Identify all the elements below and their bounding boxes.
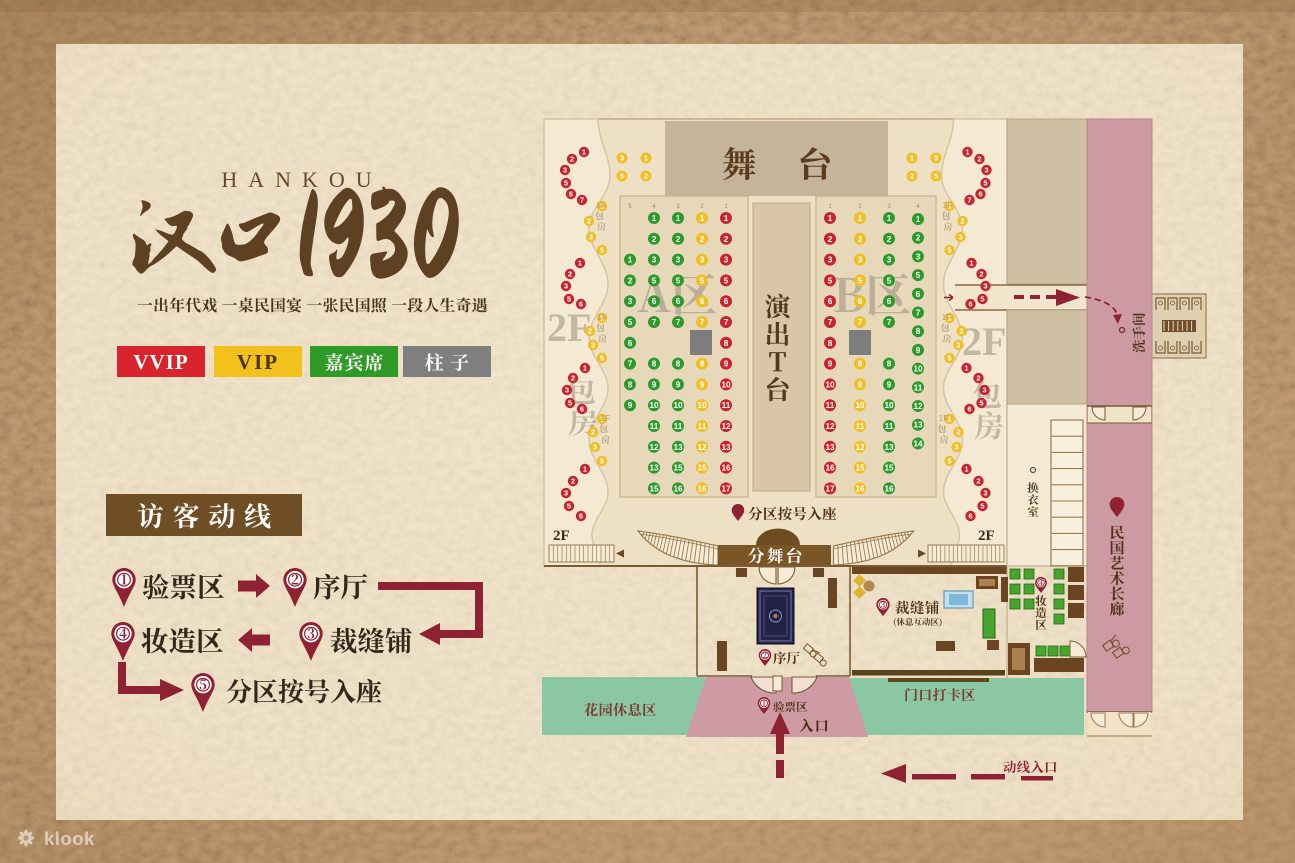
svg-text:5: 5 xyxy=(980,295,984,304)
svg-text:8: 8 xyxy=(676,360,681,369)
svg-text:13: 13 xyxy=(721,443,731,452)
svg-text:9: 9 xyxy=(887,380,892,389)
svg-text:3: 3 xyxy=(564,282,568,291)
svg-text:5: 5 xyxy=(600,354,604,363)
svg-text:2: 2 xyxy=(700,235,705,244)
svg-text:12: 12 xyxy=(855,443,865,452)
svg-text:12: 12 xyxy=(825,422,835,431)
svg-text:9: 9 xyxy=(724,360,729,369)
svg-text:1: 1 xyxy=(910,154,914,163)
svg-text:7: 7 xyxy=(628,360,633,369)
svg-text:VVIP: VVIP xyxy=(133,350,188,374)
svg-text:6: 6 xyxy=(724,297,729,306)
svg-text:15: 15 xyxy=(697,464,707,473)
svg-text:12: 12 xyxy=(721,422,731,431)
svg-text:2: 2 xyxy=(676,235,681,244)
svg-text:8: 8 xyxy=(652,360,657,369)
svg-text:3: 3 xyxy=(984,166,988,175)
svg-text:2: 2 xyxy=(976,374,980,383)
svg-text:2F: 2F xyxy=(553,528,570,544)
svg-text:16: 16 xyxy=(884,484,894,493)
svg-text:1: 1 xyxy=(964,364,968,373)
svg-text:7: 7 xyxy=(652,318,657,327)
svg-text:3: 3 xyxy=(563,166,567,175)
svg-text:6: 6 xyxy=(579,300,583,309)
svg-text:10: 10 xyxy=(697,401,707,410)
svg-text:16: 16 xyxy=(673,484,683,493)
svg-text:2: 2 xyxy=(979,270,983,279)
svg-text:17: 17 xyxy=(825,484,835,493)
svg-text:7: 7 xyxy=(916,309,921,318)
svg-text:10: 10 xyxy=(649,401,659,410)
svg-text:1: 1 xyxy=(652,214,657,223)
svg-text:6: 6 xyxy=(916,290,921,299)
svg-text:3: 3 xyxy=(620,154,624,163)
svg-text:11: 11 xyxy=(885,422,894,431)
svg-text:6: 6 xyxy=(628,339,633,348)
svg-text:10: 10 xyxy=(721,380,731,389)
svg-text:5: 5 xyxy=(568,399,572,408)
svg-text:2F: 2F xyxy=(962,319,1006,364)
svg-text:7: 7 xyxy=(967,196,971,205)
svg-text:3: 3 xyxy=(593,443,597,452)
svg-text:17: 17 xyxy=(721,484,731,493)
svg-text:11: 11 xyxy=(856,422,865,431)
svg-text:16: 16 xyxy=(721,464,731,473)
svg-text:11: 11 xyxy=(826,401,835,410)
svg-text:1: 1 xyxy=(965,148,969,157)
svg-text:3: 3 xyxy=(954,443,958,452)
svg-text:1: 1 xyxy=(583,465,587,474)
svg-text:13: 13 xyxy=(649,464,659,473)
svg-text:3: 3 xyxy=(858,256,863,265)
svg-text:3: 3 xyxy=(724,256,729,265)
svg-text:8: 8 xyxy=(828,339,833,348)
svg-text:8: 8 xyxy=(628,380,633,389)
svg-text:3: 3 xyxy=(628,297,633,306)
svg-text:1: 1 xyxy=(700,214,705,223)
svg-text:2: 2 xyxy=(724,235,729,244)
svg-text:6: 6 xyxy=(828,297,833,306)
svg-text:11: 11 xyxy=(674,422,683,431)
svg-text:11: 11 xyxy=(722,401,731,410)
svg-text:5: 5 xyxy=(947,246,951,255)
svg-text:3: 3 xyxy=(934,154,938,163)
svg-text:7: 7 xyxy=(580,196,584,205)
svg-text:6: 6 xyxy=(676,297,681,306)
svg-text:3: 3 xyxy=(652,256,657,265)
svg-text:2F: 2F xyxy=(547,305,591,350)
svg-text:2: 2 xyxy=(916,234,921,243)
svg-text:9: 9 xyxy=(652,380,657,389)
svg-text:13: 13 xyxy=(884,443,894,452)
svg-text:9: 9 xyxy=(628,401,633,410)
svg-text:5: 5 xyxy=(858,276,863,285)
svg-text:klook: klook xyxy=(44,828,95,849)
svg-text:8: 8 xyxy=(858,360,863,369)
svg-text:2: 2 xyxy=(652,235,657,244)
svg-text:5: 5 xyxy=(980,502,984,511)
svg-text:6: 6 xyxy=(968,512,972,521)
svg-text:7: 7 xyxy=(858,318,863,327)
svg-text:10: 10 xyxy=(913,365,923,374)
svg-text:8: 8 xyxy=(724,339,729,348)
svg-text:1: 1 xyxy=(724,214,729,223)
svg-text:3: 3 xyxy=(676,256,681,265)
svg-text:1: 1 xyxy=(583,364,587,373)
svg-text:6: 6 xyxy=(580,405,584,414)
svg-text:3: 3 xyxy=(983,282,987,291)
svg-text:6: 6 xyxy=(967,405,971,414)
svg-text:3: 3 xyxy=(828,256,833,265)
svg-text:5: 5 xyxy=(700,276,705,285)
svg-text:5: 5 xyxy=(620,172,624,181)
svg-text:3: 3 xyxy=(982,386,986,395)
svg-text:1: 1 xyxy=(916,215,921,224)
svg-text:1: 1 xyxy=(628,256,633,265)
svg-text:3: 3 xyxy=(983,489,987,498)
svg-text:1: 1 xyxy=(858,214,863,223)
svg-text:5: 5 xyxy=(828,276,833,285)
svg-text:7: 7 xyxy=(676,318,681,327)
svg-text:5: 5 xyxy=(567,295,571,304)
svg-text:9: 9 xyxy=(916,346,921,355)
svg-text:2: 2 xyxy=(887,235,892,244)
svg-text:1: 1 xyxy=(578,259,582,268)
svg-text:1: 1 xyxy=(828,214,833,223)
svg-text:3: 3 xyxy=(958,233,962,242)
svg-text:2: 2 xyxy=(570,155,574,164)
svg-text:6: 6 xyxy=(569,190,573,199)
svg-text:2: 2 xyxy=(568,270,572,279)
svg-text:16: 16 xyxy=(697,484,707,493)
svg-text:9: 9 xyxy=(700,380,705,389)
svg-text:2: 2 xyxy=(910,172,914,181)
svg-text:13: 13 xyxy=(825,443,835,452)
svg-text:9: 9 xyxy=(676,380,681,389)
svg-text:2: 2 xyxy=(628,276,633,285)
svg-text:3: 3 xyxy=(564,489,568,498)
svg-text:5: 5 xyxy=(916,271,921,280)
svg-text:12: 12 xyxy=(913,402,923,411)
svg-text:3: 3 xyxy=(916,252,921,261)
svg-text:HANKOU: HANKOU xyxy=(221,167,382,192)
svg-text:1: 1 xyxy=(644,154,648,163)
svg-text:6: 6 xyxy=(887,297,892,306)
svg-text:7: 7 xyxy=(700,318,705,327)
svg-text:10: 10 xyxy=(855,401,865,410)
svg-text:5: 5 xyxy=(887,276,892,285)
svg-text:10: 10 xyxy=(825,380,835,389)
svg-text:2: 2 xyxy=(571,477,575,486)
svg-text:15: 15 xyxy=(673,464,683,473)
svg-text:12: 12 xyxy=(649,443,659,452)
svg-text:3: 3 xyxy=(700,256,705,265)
svg-text:5: 5 xyxy=(652,276,657,285)
svg-text:2: 2 xyxy=(959,327,963,336)
svg-text:3: 3 xyxy=(589,233,593,242)
svg-text:2: 2 xyxy=(977,155,981,164)
svg-text:5: 5 xyxy=(979,399,983,408)
svg-text:15: 15 xyxy=(649,484,659,493)
svg-text:14: 14 xyxy=(913,439,923,448)
svg-text:13: 13 xyxy=(673,443,683,452)
svg-text:1: 1 xyxy=(964,465,968,474)
svg-text:1F: 1F xyxy=(942,312,952,322)
svg-text:6: 6 xyxy=(652,297,657,306)
svg-text:8: 8 xyxy=(700,360,705,369)
svg-text:1: 1 xyxy=(676,214,681,223)
svg-text:1: 1 xyxy=(887,214,892,223)
svg-text:6: 6 xyxy=(978,190,982,199)
svg-text:1F: 1F xyxy=(596,200,606,210)
svg-text:6: 6 xyxy=(579,512,583,521)
svg-text:6: 6 xyxy=(968,300,972,309)
svg-text:16: 16 xyxy=(855,484,865,493)
svg-text:2: 2 xyxy=(956,428,960,437)
svg-text:2: 2 xyxy=(858,235,863,244)
svg-text:5: 5 xyxy=(947,457,951,466)
svg-text:8: 8 xyxy=(916,327,921,336)
svg-text:1F: 1F xyxy=(600,413,610,423)
svg-text:13: 13 xyxy=(913,421,923,430)
svg-text:2F: 2F xyxy=(978,528,995,544)
svg-text:7: 7 xyxy=(887,318,892,327)
svg-text:3: 3 xyxy=(956,341,960,350)
svg-text:8: 8 xyxy=(887,360,892,369)
svg-text:5: 5 xyxy=(600,246,604,255)
svg-text:10: 10 xyxy=(673,401,683,410)
svg-text:15: 15 xyxy=(855,464,865,473)
svg-text:2: 2 xyxy=(644,172,648,181)
svg-text:15: 15 xyxy=(884,464,894,473)
svg-text:2: 2 xyxy=(571,374,575,383)
svg-text:2: 2 xyxy=(588,327,592,336)
svg-text:5: 5 xyxy=(628,318,633,327)
svg-text:16: 16 xyxy=(825,464,835,473)
svg-text:5: 5 xyxy=(600,457,604,466)
svg-text:10: 10 xyxy=(884,401,894,410)
svg-text:7: 7 xyxy=(828,318,833,327)
svg-text:1: 1 xyxy=(969,259,973,268)
svg-text:VIP: VIP xyxy=(237,350,279,374)
svg-text:5: 5 xyxy=(983,179,987,188)
svg-text:12: 12 xyxy=(697,443,707,452)
svg-text:5: 5 xyxy=(567,502,571,511)
svg-text:5: 5 xyxy=(947,354,951,363)
svg-text:11: 11 xyxy=(914,383,923,392)
svg-text:9: 9 xyxy=(858,380,863,389)
svg-text:5: 5 xyxy=(934,172,938,181)
svg-text:2: 2 xyxy=(591,428,595,437)
svg-text:5: 5 xyxy=(724,276,729,285)
svg-text:5: 5 xyxy=(676,276,681,285)
svg-text:11: 11 xyxy=(650,422,659,431)
svg-text:5: 5 xyxy=(564,179,568,188)
svg-text:3: 3 xyxy=(565,386,569,395)
svg-text:2: 2 xyxy=(976,477,980,486)
svg-text:2: 2 xyxy=(587,217,591,226)
svg-text:9: 9 xyxy=(828,360,833,369)
svg-text:1F: 1F xyxy=(939,413,949,423)
svg-text:1F: 1F xyxy=(943,200,953,210)
svg-text:2: 2 xyxy=(960,217,964,226)
svg-text:2: 2 xyxy=(828,235,833,244)
svg-text:11: 11 xyxy=(698,422,707,431)
svg-text:3: 3 xyxy=(591,341,595,350)
svg-text:7: 7 xyxy=(724,318,729,327)
svg-text:1: 1 xyxy=(582,148,586,157)
svg-text:6: 6 xyxy=(858,297,863,306)
svg-text:6: 6 xyxy=(700,297,705,306)
svg-text:3: 3 xyxy=(887,256,892,265)
svg-text:1F: 1F xyxy=(597,312,607,322)
